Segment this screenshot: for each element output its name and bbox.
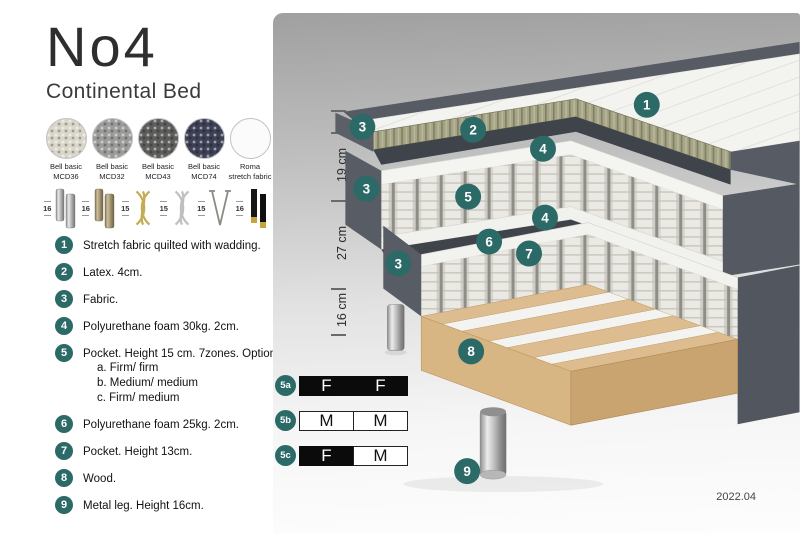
feature-text: Polyurethane foam 25kg. 2cm. [83, 415, 239, 432]
firmness-badge: 5c [275, 445, 296, 466]
firmness-cell: M [353, 411, 408, 431]
leg-option-hairpin: 15 [196, 185, 235, 231]
callout-6: 6 [476, 229, 502, 255]
leg-options-row: 16 16 15 15 [42, 185, 273, 231]
version-date: 2022.04 [716, 491, 756, 503]
feature-item-3: 3Fabric. [55, 290, 270, 308]
feature-number-badge: 4 [55, 317, 73, 335]
middle-right-fabric [723, 184, 800, 277]
chrome-cylinder-leg-icon [53, 187, 79, 229]
measure-dash [44, 201, 51, 202]
feature-item-5: 5 Pocket. Height 15 cm. 7zones. Option: … [55, 344, 270, 406]
callout-2: 2 [460, 117, 486, 143]
svg-text:6: 6 [485, 234, 493, 249]
fabric-swatch: Romastretch fabric [228, 118, 272, 182]
feature-number-badge: 1 [55, 236, 73, 254]
fabric-swatch-circle [138, 118, 179, 159]
feature-text: Fabric. [83, 290, 118, 307]
leg-height-label: 15 [197, 204, 205, 213]
feature-item-1: 1Stretch fabric quilted with wadding. [55, 236, 270, 254]
callout-3b: 3 [353, 176, 379, 202]
page-subtitle: Continental Bed [46, 80, 201, 104]
firmness-row-5a: 5a F F [275, 375, 408, 396]
firmness-cell: M [299, 411, 354, 431]
feature-item-7: 7Pocket. Height 13cm. [55, 442, 270, 460]
fabric-swatch: Bell basicMCD74 [182, 118, 226, 182]
swatch-label: Bell basic [50, 162, 82, 171]
svg-text:5: 5 [464, 189, 472, 204]
feature-number-badge: 2 [55, 263, 73, 281]
fabric-swatch-row: Bell basicMCD36 Bell basicMCD32 Bell bas… [44, 118, 272, 182]
feature-text: Stretch fabric quilted with wadding. [83, 236, 261, 253]
feature-number-badge: 7 [55, 442, 73, 460]
leg-height-label: 16 [236, 204, 244, 213]
leg-option-bronze-cylinder: 16 [81, 185, 120, 231]
feature-text: Metal leg. Height 16cm. [83, 496, 204, 513]
callout-3c: 3 [385, 251, 411, 277]
leg-height-label: 15 [121, 204, 129, 213]
firmness-cell: F [353, 376, 408, 396]
feature-item-4: 4Polyurethane foam 30kg. 2cm. [55, 317, 270, 335]
feature-number-badge: 9 [55, 496, 73, 514]
bronze-cylinder-leg-icon [92, 187, 118, 229]
svg-text:3: 3 [359, 120, 367, 135]
fabric-swatch-circle [184, 118, 225, 159]
leg-height-label: 16 [43, 204, 51, 213]
callout-8: 8 [458, 338, 484, 364]
fabric-swatch: Bell basicMCD36 [44, 118, 88, 182]
fabric-swatch-circle [46, 118, 87, 159]
callout-9: 9 [454, 458, 480, 484]
leg-option-chrome-cylinder: 16 [42, 185, 81, 231]
leg-option-gold-twist: 15 [119, 185, 158, 231]
leg-height-label: 15 [160, 204, 168, 213]
infographic-page: No4 Continental Bed Bell basicMCD36 Bell… [0, 0, 800, 533]
firmness-row-5b: 5b M M [275, 410, 408, 431]
swatch-label: Bell basic [96, 162, 128, 171]
leg-height-label: 16 [82, 204, 90, 213]
black-gold-leg-icon [246, 187, 272, 229]
silver-twist-leg-icon [170, 187, 194, 229]
feature-number-badge: 6 [55, 415, 73, 433]
callout-4b: 4 [532, 205, 558, 231]
leg-option-black-gold: 16 [235, 185, 274, 231]
feature-item-8: 8Wood. [55, 469, 270, 487]
firmness-badge: 5b [275, 410, 296, 431]
callout-3a: 3 [349, 114, 375, 140]
firmness-cell: F [299, 446, 354, 466]
illustration-panel: 6 19 cm 27 cm 16 cm [273, 13, 800, 533]
feature-number-badge: 5 [55, 344, 73, 362]
product-title-block: No4 Continental Bed [46, 18, 201, 104]
back-metal-leg [387, 304, 404, 350]
feature-item-9: 9Metal leg. Height 16cm. [55, 496, 270, 514]
callout-4a: 4 [530, 136, 556, 162]
firmness-badge: 5a [275, 375, 296, 396]
swatch-label: Roma [240, 162, 260, 171]
feature-text: Polyurethane foam 30kg. 2cm. [83, 317, 239, 334]
svg-text:2: 2 [469, 123, 477, 138]
svg-text:7: 7 [525, 246, 533, 261]
svg-text:4: 4 [541, 210, 549, 225]
feature-option-c: c. Firm/ medium [97, 392, 179, 404]
svg-text:1: 1 [643, 98, 651, 113]
gold-twist-leg-icon [131, 187, 155, 229]
swatch-label: Bell basic [188, 162, 220, 171]
svg-text:8: 8 [467, 344, 475, 359]
callout-5: 5 [455, 184, 481, 210]
page-title: No4 [46, 18, 201, 77]
fabric-swatch-circle [92, 118, 133, 159]
feature-text: Pocket. Height 13cm. [83, 442, 192, 459]
swatch-label: Bell basic [142, 162, 174, 171]
feature-text: Wood. [83, 469, 116, 486]
svg-text:3: 3 [363, 181, 371, 196]
callout-7: 7 [516, 241, 542, 267]
feature-option-b: b. Medium/ medium [97, 377, 198, 389]
firmness-cell: F [299, 376, 354, 396]
svg-text:3: 3 [395, 256, 403, 271]
fabric-swatch-circle [230, 118, 271, 159]
callout-1: 1 [634, 92, 660, 118]
base-right-fabric [738, 266, 800, 425]
feature-text: Latex. 4cm. [83, 263, 142, 280]
feature-item-6: 6Polyurethane foam 25kg. 2cm. [55, 415, 270, 433]
feature-item-2: 2Latex. 4cm. [55, 263, 270, 281]
feature-list: 1Stretch fabric quilted with wadding. 2L… [55, 236, 270, 523]
fabric-swatch: Bell basicMCD32 [90, 118, 134, 182]
firmness-cell: M [353, 446, 408, 466]
hairpin-leg-icon [207, 187, 233, 229]
feature-number-badge: 3 [55, 290, 73, 308]
svg-text:4: 4 [539, 142, 547, 157]
fabric-swatch: Bell basicMCD43 [136, 118, 180, 182]
firmness-row-5c: 5c F M [275, 445, 408, 466]
svg-text:9: 9 [463, 464, 471, 479]
feature-number-badge: 8 [55, 469, 73, 487]
feature-text: Pocket. Height 15 cm. 7zones. Option: [83, 348, 279, 360]
feature-option-a: a. Firm/ firm [97, 362, 158, 374]
leg-option-silver-twist: 15 [158, 185, 197, 231]
